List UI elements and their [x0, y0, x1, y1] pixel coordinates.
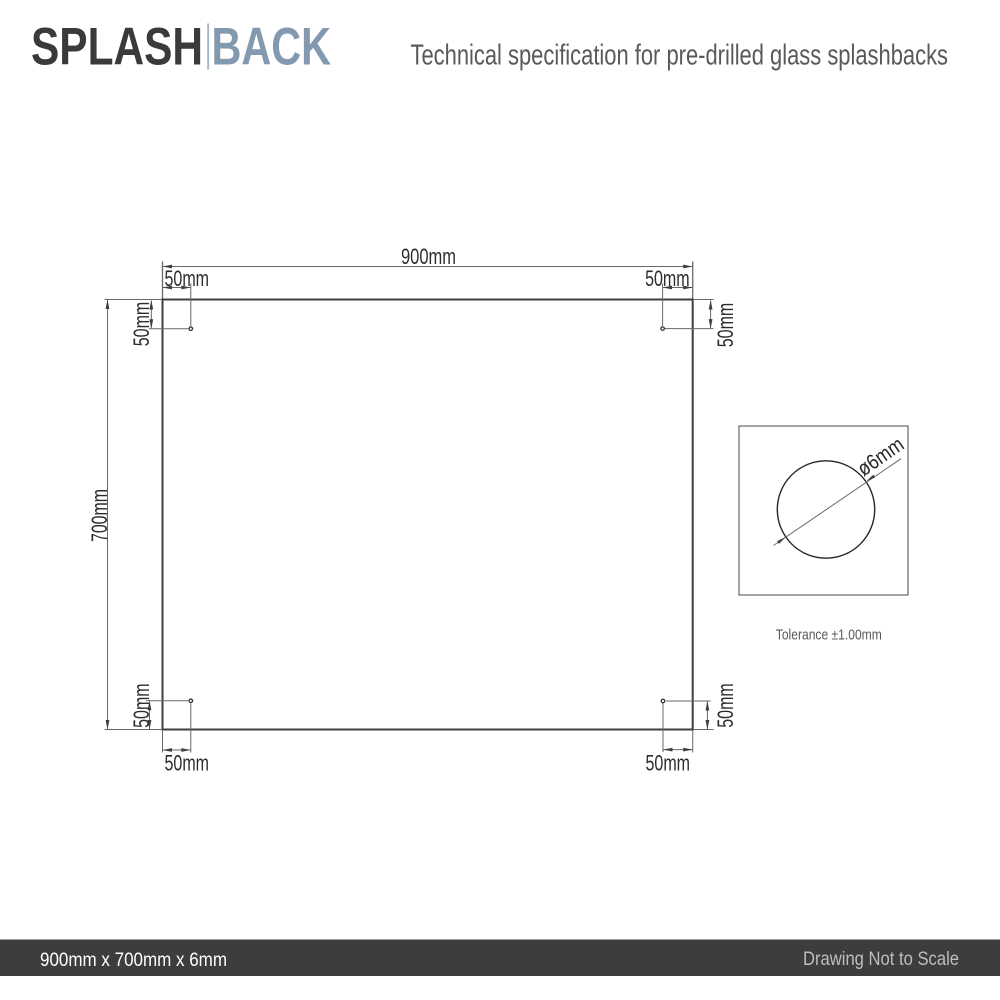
svg-text:50mm: 50mm	[713, 303, 738, 348]
svg-text:50mm: 50mm	[165, 751, 210, 776]
svg-text:SPLASH: SPLASH	[31, 18, 203, 77]
svg-text:900mm x 700mm x 6mm: 900mm x 700mm x 6mm	[40, 950, 227, 971]
svg-text:900mm: 900mm	[401, 244, 456, 269]
svg-text:700mm: 700mm	[87, 489, 112, 542]
svg-text:50mm: 50mm	[165, 266, 210, 291]
svg-text:50mm: 50mm	[646, 751, 691, 776]
svg-text:Technical specification for pr: Technical specification for pre-drilled …	[411, 40, 949, 72]
svg-text:50mm: 50mm	[645, 266, 690, 291]
svg-text:BACK: BACK	[212, 18, 332, 77]
svg-text:Tolerance ±1.00mm: Tolerance ±1.00mm	[776, 628, 882, 644]
svg-text:50mm: 50mm	[129, 302, 154, 347]
svg-text:Drawing Not to Scale: Drawing Not to Scale	[803, 948, 959, 970]
svg-text:50mm: 50mm	[129, 683, 154, 728]
svg-text:50mm: 50mm	[713, 683, 738, 728]
